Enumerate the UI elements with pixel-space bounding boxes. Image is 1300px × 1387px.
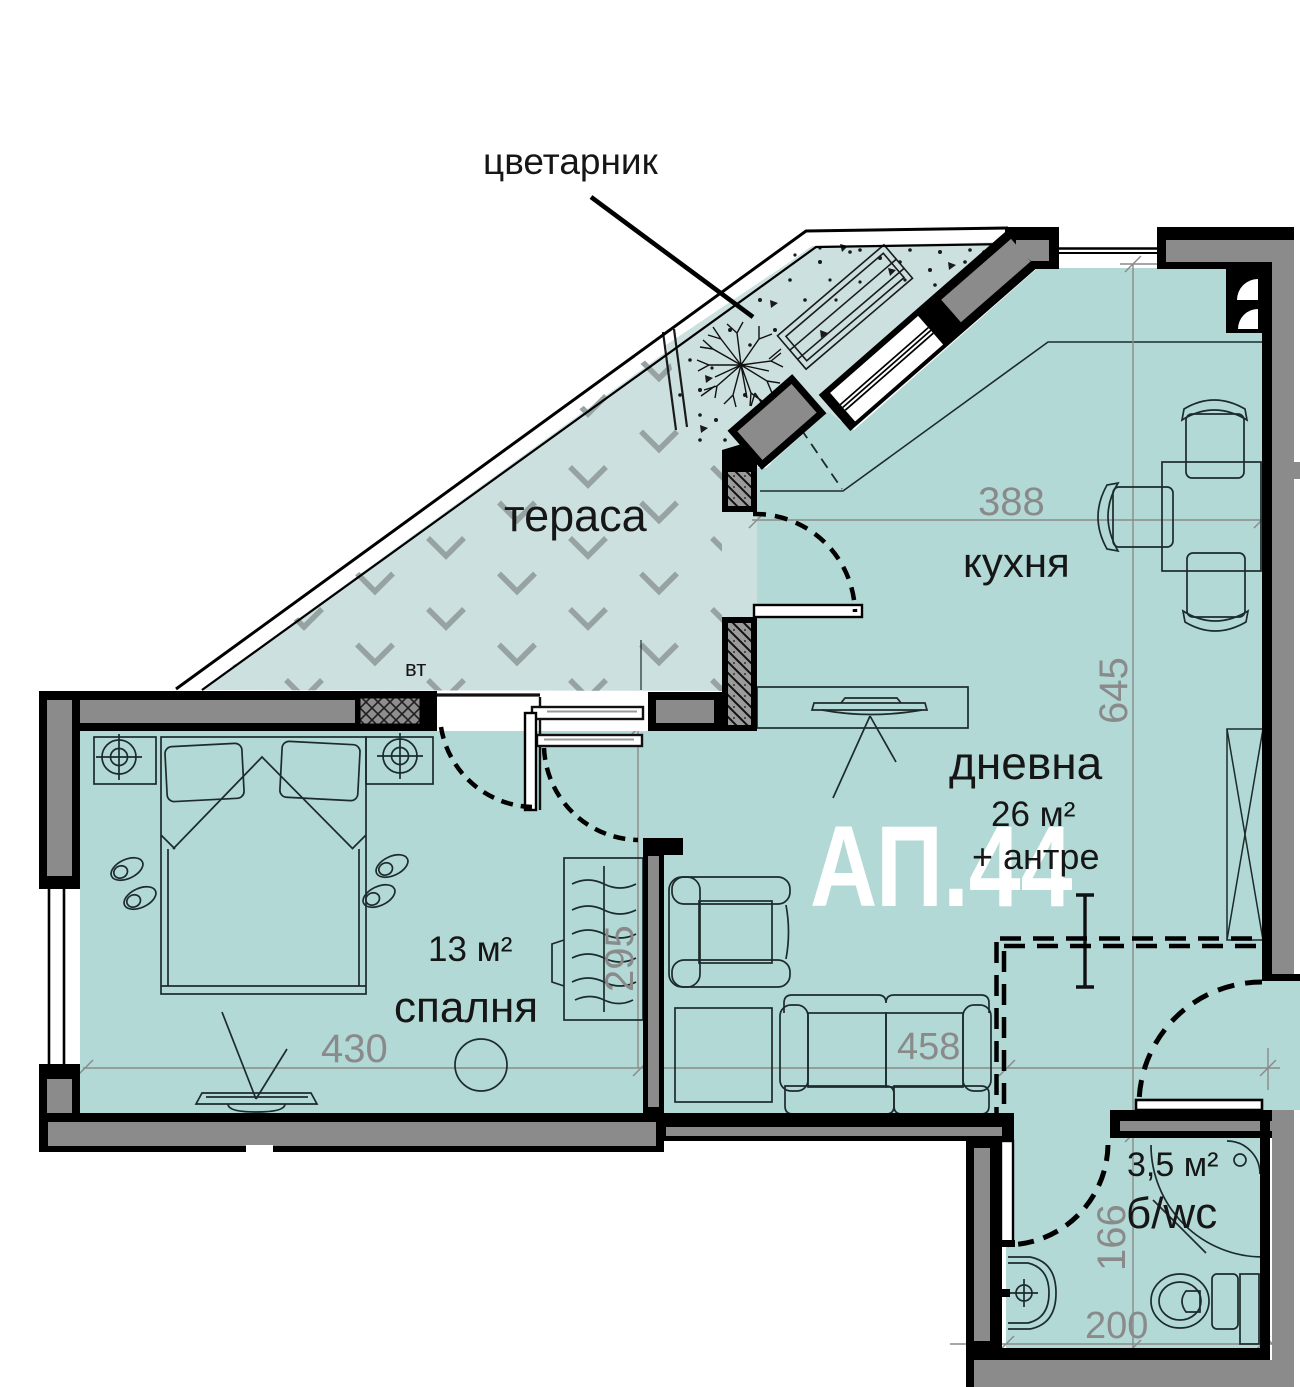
svg-text:645: 645 <box>1092 657 1136 724</box>
svg-text:тераса: тераса <box>504 490 648 541</box>
svg-text:458: 458 <box>897 1026 960 1068</box>
svg-text:295: 295 <box>598 925 642 992</box>
svg-text:388: 388 <box>978 480 1045 524</box>
svg-text:3,5 м²: 3,5 м² <box>1127 1146 1218 1184</box>
svg-text:13 м²: 13 м² <box>428 930 512 969</box>
svg-text:+ антре: + антре <box>972 836 1099 877</box>
svg-text:кухня: кухня <box>963 539 1070 586</box>
svg-text:цветарник: цветарник <box>483 141 659 182</box>
svg-text:26 м²: 26 м² <box>991 795 1075 834</box>
svg-text:дневна: дневна <box>949 737 1103 789</box>
svg-text:200: 200 <box>1085 1305 1148 1347</box>
svg-text:б/wc: б/wc <box>1126 1189 1217 1238</box>
svg-text:спалня: спалня <box>394 983 538 1032</box>
svg-text:430: 430 <box>321 1027 388 1071</box>
svg-text:вт: вт <box>405 656 426 681</box>
svg-text:166: 166 <box>1090 1204 1134 1271</box>
